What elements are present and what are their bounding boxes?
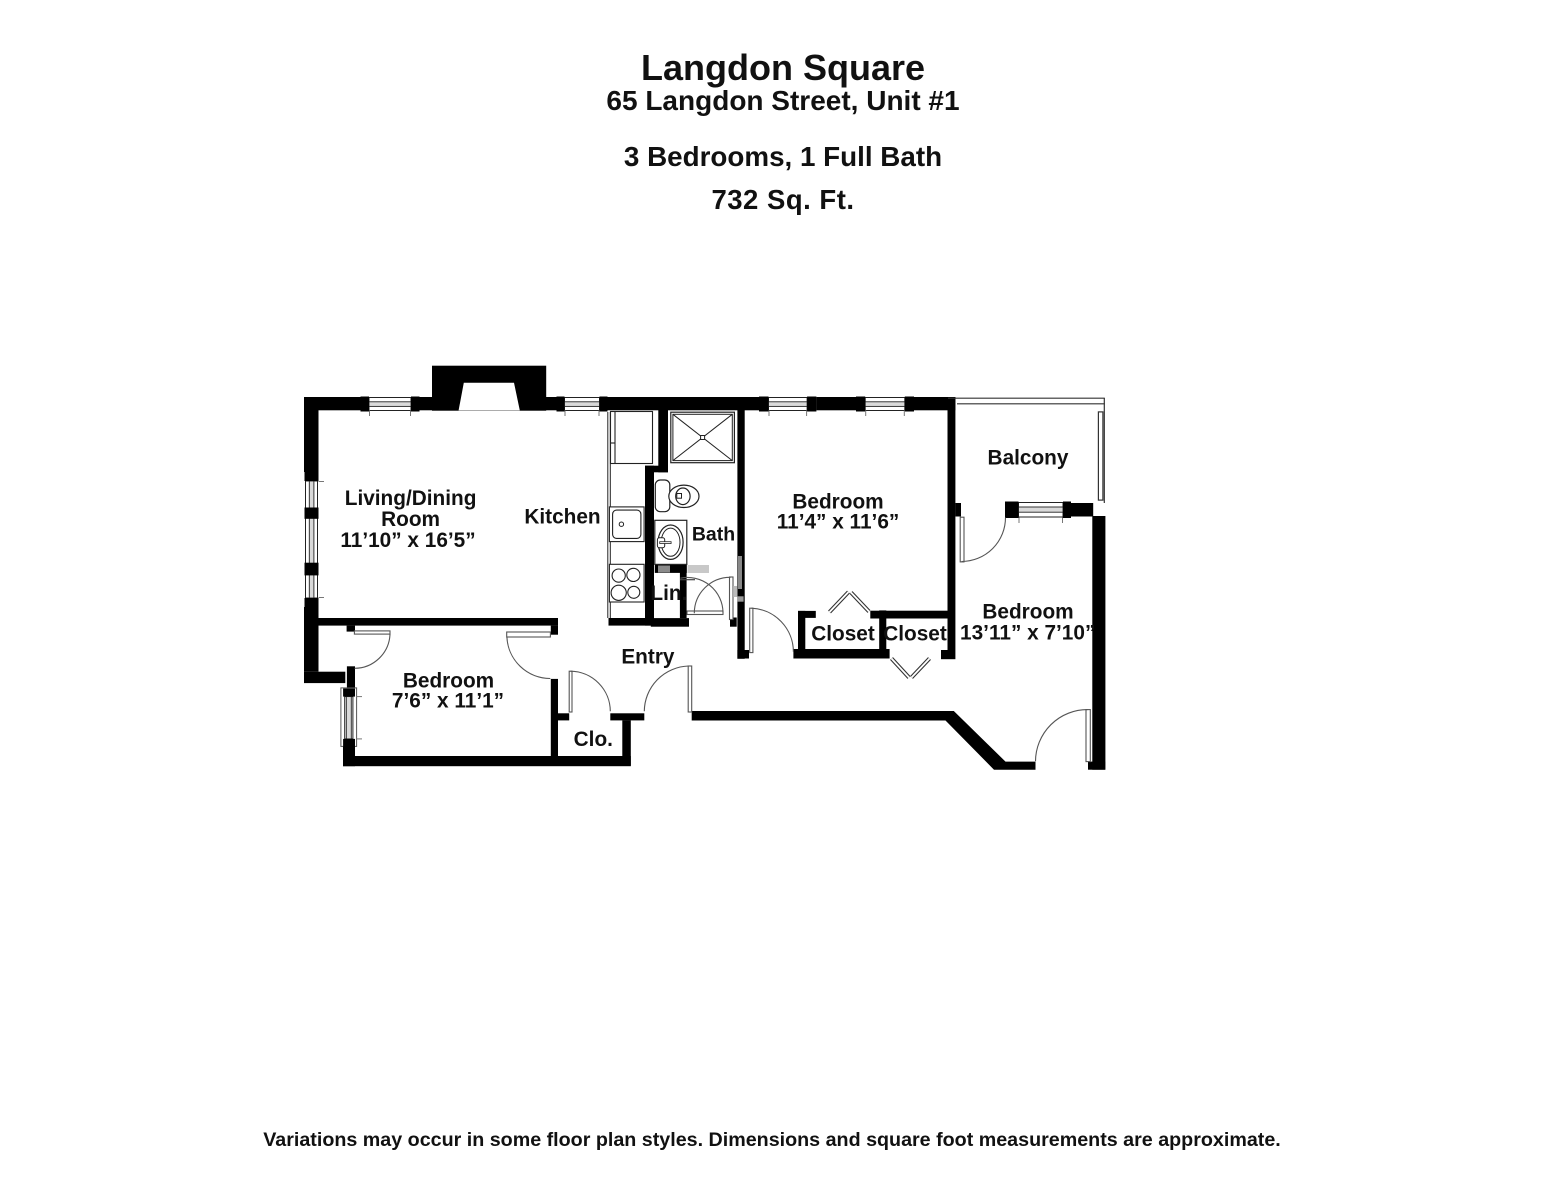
svg-text:Entry: Entry bbox=[621, 646, 675, 669]
svg-text:Clo.: Clo. bbox=[574, 728, 613, 751]
svg-text:Kitchen: Kitchen bbox=[524, 506, 600, 529]
svg-text:Closet: Closet bbox=[883, 623, 947, 646]
svg-text:Lin.: Lin. bbox=[650, 582, 687, 605]
svg-text:Langdon Square: Langdon Square bbox=[641, 47, 925, 88]
svg-text:13’11” x 7’10”: 13’11” x 7’10” bbox=[960, 622, 1095, 645]
svg-text:11’4” x 11’6”: 11’4” x 11’6” bbox=[777, 511, 900, 534]
svg-text:Closet: Closet bbox=[811, 623, 875, 646]
svg-text:Balcony: Balcony bbox=[988, 447, 1069, 470]
svg-text:11’10” x 16’5”: 11’10” x 16’5” bbox=[340, 529, 475, 552]
svg-text:7’6” x 11’1”: 7’6” x 11’1” bbox=[392, 690, 504, 713]
svg-text:Variations may occur in some f: Variations may occur in some floor plan … bbox=[263, 1129, 1281, 1151]
svg-text:Living/Dining: Living/Dining bbox=[345, 487, 477, 510]
svg-text:3 Bedrooms, 1 Full Bath: 3 Bedrooms, 1 Full Bath bbox=[624, 141, 942, 172]
svg-text:Bedroom: Bedroom bbox=[982, 601, 1073, 624]
svg-text:65 Langdon Street, Unit #1: 65 Langdon Street, Unit #1 bbox=[606, 85, 959, 116]
svg-text:Room: Room bbox=[381, 508, 440, 531]
svg-text:Bath: Bath bbox=[692, 524, 735, 546]
svg-text:732 Sq. Ft.: 732 Sq. Ft. bbox=[711, 184, 854, 215]
